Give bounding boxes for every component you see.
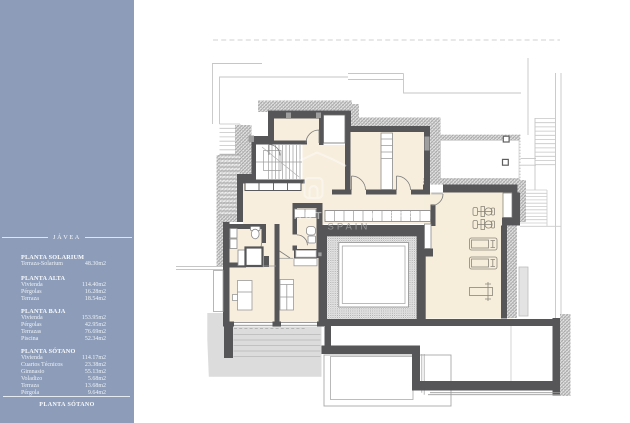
- svg-text:AUTHENTIC SPAIN: AUTHENTIC SPAIN: [294, 210, 434, 222]
- svg-text:SPAIN: SPAIN: [328, 221, 371, 232]
